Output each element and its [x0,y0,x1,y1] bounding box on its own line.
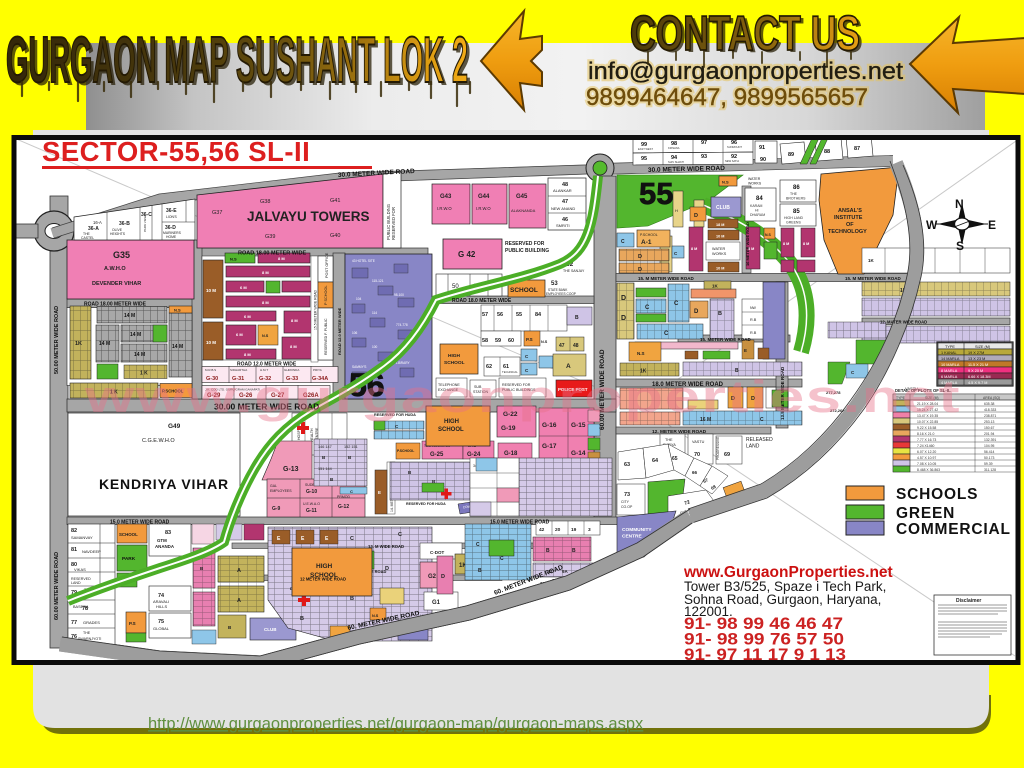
svg-text:97: 97 [701,140,707,146]
svg-text:9 X 20 M: 9 X 20 M [968,369,983,373]
svg-text:10 M: 10 M [206,340,216,345]
svg-text:G-19: G-19 [501,425,516,432]
svg-text:GLOBAL: GLOBAL [153,626,170,631]
svg-text:NAVDEEP: NAVDEEP [82,549,101,554]
svg-text:G-9: G-9 [272,506,281,512]
svg-text:NEW ANAND: NEW ANAND [551,206,575,211]
svg-text:151 144: 151 144 [318,467,332,471]
svg-text:E: E [378,490,381,495]
svg-text:114: 114 [372,311,377,315]
svg-text:CLUB: CLUB [716,205,730,211]
svg-text:www.gurgaonproperties.net: www.gurgaonproperties.net [84,371,961,422]
svg-text:70: 70 [694,452,700,458]
svg-text:PRMOD: PRMOD [337,495,351,499]
svg-text:WORKS: WORKS [712,252,727,256]
svg-text:N.S: N.S [230,257,237,262]
svg-text:19 X 27M: 19 X 27M [968,351,984,355]
svg-text:47: 47 [562,199,568,205]
svg-text:SCHOOL: SCHOOL [438,427,464,433]
svg-text:6.07 X 12.20: 6.07 X 12.20 [917,450,936,454]
svg-text:P.S: P.S [129,621,136,626]
svg-text:E: E [744,348,747,353]
svg-text:P.S: P.S [526,337,533,342]
svg-text:THE: THE [790,192,798,196]
svg-text:82: 82 [71,528,77,534]
svg-text:HIGH: HIGH [316,563,333,570]
svg-text:SMRITI: SMRITI [556,223,570,228]
svg-text:ANSAL'S: ANSAL'S [838,208,862,214]
svg-text:C: C [476,542,480,548]
svg-text:N.S: N.S [541,340,548,344]
svg-text:8.16 X 21.0: 8.16 X 21.0 [917,432,934,436]
svg-text:8 M: 8 M [291,318,298,323]
svg-text:69: 69 [724,452,730,458]
svg-text:GAL: GAL [270,484,277,488]
svg-text:N.S: N.S [174,308,181,313]
svg-text:104.95: 104.95 [984,444,994,448]
svg-text:G-12: G-12 [338,504,349,510]
svg-text:20: 20 [555,527,561,533]
svg-text:SAMANVAY: SAMANVAY [71,535,93,540]
svg-text:DHARAM: DHARAM [750,213,765,217]
svg-text:62: 62 [486,364,492,370]
svg-text:58: 58 [482,338,488,344]
svg-text:8 M: 8 M [262,270,269,275]
svg-text:N.S: N.S [372,614,379,618]
svg-text:EMPLOYEES COOP: EMPLOYEES COOP [546,292,576,296]
svg-text:N.S: N.S [262,334,269,338]
svg-text:RESERVED FOR: RESERVED FOR [505,241,545,247]
svg-text:10 M: 10 M [716,267,724,271]
svg-text:146 147: 146 147 [318,445,332,449]
svg-text:86: 86 [793,185,800,191]
svg-text:59: 59 [495,338,501,344]
svg-text:36-E: 36-E [166,208,177,214]
svg-text:93: 93 [701,154,707,160]
svg-text:N: N [955,197,964,211]
svg-text:JALVAYU TOWERS: JALVAYU TOWERS [247,209,370,224]
svg-text:BASERA: BASERA [73,605,89,609]
svg-text:1K: 1K [712,284,719,289]
svg-text:AREA (SQ): AREA (SQ) [983,396,1000,400]
svg-text:WATER: WATER [748,177,761,181]
svg-text:8 M: 8 M [290,344,297,349]
svg-text:14 MARLA: 14 MARLA [941,357,960,361]
svg-text:13 X 23 M: 13 X 23 M [968,357,985,361]
svg-text:G-24: G-24 [467,452,481,458]
svg-text:CLUB: CLUB [264,627,277,632]
svg-text:GURGAON MAP SUSHANT LOK 2: GURGAON MAP SUSHANT LOK 2 [6,23,468,96]
svg-text:TECHNOLOGY: TECHNOLOGY [828,229,867,235]
svg-text:106: 106 [352,331,358,335]
svg-text:77: 77 [71,620,77,626]
svg-text:P SCHOOL: P SCHOOL [324,285,328,305]
svg-text:HEALTH: HEALTH [310,428,314,442]
svg-text:6 M: 6 M [240,285,247,290]
svg-text:B: B [546,548,550,554]
svg-text:3: 3 [588,527,591,533]
svg-text:G-25: G-25 [430,452,444,458]
svg-text:15. M METER WIDE ROAD: 15. M METER WIDE ROAD [845,276,902,281]
svg-text:LAND: LAND [71,581,81,585]
svg-text:G1: G1 [432,600,441,606]
svg-text:RESERVED FOR: RESERVED FOR [391,207,396,240]
svg-text:48: 48 [573,343,579,349]
svg-text:4.5 X 9.7 M: 4.5 X 9.7 M [968,381,987,385]
svg-text:THE: THE [83,631,91,635]
svg-text:84: 84 [756,196,763,202]
svg-text:ROAD 18.00 METER WIDE: ROAD 18.00 METER WIDE [84,302,147,308]
svg-text:91: 91 [759,145,765,151]
svg-text:63: 63 [624,462,630,468]
svg-text:CO.OP: CO.OP [621,505,633,509]
svg-text:13. M WIDE ROAD: 13. M WIDE ROAD [368,544,404,549]
svg-text:PUBLIC BUILDING: PUBLIC BUILDING [386,204,391,240]
svg-text:ANANDA: ANANDA [155,544,175,549]
svg-text:ROAD 18.00 METER WIDE: ROAD 18.00 METER WIDE [238,251,306,257]
svg-text:9899464647, 9899565657: 9899464647, 9899565657 [586,84,868,111]
svg-text:115-121: 115-121 [372,279,384,283]
svg-text:6.66 X 18.3M: 6.66 X 18.3M [968,375,991,379]
svg-text:WATER: WATER [712,247,726,251]
svg-text:152 151: 152 151 [344,445,358,449]
svg-text:P.SCHOOL: P.SCHOOL [397,449,414,453]
svg-text:C: C [500,556,504,562]
svg-text:ALAKNANDA: ALAKNANDA [511,208,536,213]
svg-text:15. METER WIDE ROAD: 15. METER WIDE ROAD [700,337,752,342]
svg-text:HI: HI [755,209,759,213]
svg-text:B: B [350,596,354,602]
svg-text:OF: OF [846,222,854,228]
svg-text:G49: G49 [168,423,181,430]
svg-text:10 MARLA: 10 MARLA [941,363,960,367]
svg-text:60.00 METER WIDE ROAD: 60.00 METER WIDE ROAD [54,552,60,620]
svg-text:65: 65 [672,456,678,462]
svg-text:SHIV SHAKTI: SHIV SHAKTI [668,160,684,164]
svg-text:E: E [988,218,996,232]
svg-text:HILLS: HILLS [156,604,167,609]
svg-text:C: C [398,532,402,538]
svg-text:ROAD 12.0 METER WIDE: ROAD 12.0 METER WIDE [337,307,342,355]
svg-text:NEW SATIA: NEW SATIA [725,159,739,163]
svg-text:42: 42 [539,527,545,533]
svg-text:GREEN: GREEN [896,505,955,522]
svg-text:104: 104 [356,297,362,301]
svg-text:SUNMOUNT: SUNMOUNT [727,145,742,149]
svg-text:G2: G2 [428,574,437,580]
svg-text:81: 81 [71,547,77,553]
svg-text:11.5 X 21 M: 11.5 X 21 M [968,363,988,367]
svg-text:LAND: LAND [746,444,760,450]
svg-text:G-13: G-13 [283,466,299,473]
svg-text:SECTOR-55,56 SL-II: SECTOR-55,56 SL-II [42,136,310,167]
svg-text:253.13: 253.13 [984,420,994,424]
svg-text:43 HOTEL SITE: 43 HOTEL SITE [352,259,375,263]
svg-text:KARAM: KARAM [750,204,763,208]
svg-text:8 M: 8 M [278,256,285,261]
svg-text:91- 97 11 17 9 1 13: 91- 97 11 17 9 1 13 [684,645,846,664]
svg-text:GREENS: GREENS [786,221,801,225]
svg-text:53: 53 [551,281,558,287]
svg-text:55: 55 [516,312,522,318]
svg-text:R.B: R.B [750,318,757,322]
svg-text:VASTU: VASTU [692,440,705,444]
svg-text:PROGRESSIVE: PROGRESSIVE [716,437,720,460]
svg-text:36-B: 36-B [119,221,130,227]
svg-text:PARK VIEW: PARK VIEW [143,215,147,232]
svg-text:D: D [694,309,699,315]
svg-text:B: B [572,548,576,554]
svg-text:G45: G45 [516,194,528,200]
svg-text:NW: NW [750,306,757,310]
svg-text:8.468 X 36.863: 8.468 X 36.863 [917,468,940,472]
svg-text:U.E.W.A.O: U.E.W.A.O [303,502,320,506]
svg-text:N.S: N.S [722,180,729,185]
svg-text:ALANKAR: ALANKAR [553,188,572,193]
svg-text:60: 60 [508,338,514,344]
svg-text:INSTITUTE: INSTITUTE [834,215,863,221]
svg-text:CONTACT US: CONTACT US [630,7,860,61]
svg-text:100: 100 [372,345,378,349]
svg-text:15. M METER WIDE ROAD: 15. M METER WIDE ROAD [638,276,695,281]
svg-text:9.22 X 15.58: 9.22 X 15.58 [917,426,936,430]
svg-text:ROAD 18.0 METER WIDE: ROAD 18.0 METER WIDE [452,298,512,304]
svg-text:G 42: G 42 [458,250,476,259]
svg-text:10 M: 10 M [206,288,216,293]
svg-text:PUBLIC BUILDING: PUBLIC BUILDING [505,248,549,254]
svg-text:55: 55 [639,176,673,211]
svg-text:132.391: 132.391 [984,438,996,442]
svg-text:G43: G43 [440,194,452,200]
svg-text:D: D [441,574,445,580]
svg-text:635.38: 635.38 [984,402,994,406]
svg-text:C.G.E.W.H.O: C.G.E.W.H.O [142,438,175,444]
svg-text:SCHOOL: SCHOOL [444,360,465,366]
svg-text:N.S: N.S [637,351,645,356]
svg-text:59.39: 59.39 [984,462,993,466]
svg-text:G41: G41 [330,198,340,204]
svg-text:CASTEL: CASTEL [81,236,94,240]
svg-text:THE SANJAY: THE SANJAY [563,269,585,273]
svg-text:COMMERCIAL: COMMERCIAL [896,521,1011,538]
svg-text:15.0 METER WIDE ROAD: 15.0 METER WIDE ROAD [490,520,550,526]
svg-text:RELEASED: RELEASED [746,437,773,443]
svg-text:W: W [926,218,938,232]
svg-text:15.0 METER WIDE ROAD: 15.0 METER WIDE ROAD [110,520,170,526]
svg-text:POST OFFICE: POST OFFICE [325,252,329,278]
svg-text:64: 64 [652,458,659,464]
svg-text:C-DOT: C-DOT [430,550,444,555]
svg-text:SCHOOLS: SCHOOLS [896,486,978,503]
svg-text:50.00 METER WIDE ROAD: 50.00 METER WIDE ROAD [54,306,60,374]
svg-text:150.67: 150.67 [984,426,994,430]
svg-text:I.R.W.O: I.R.W.O [476,206,491,211]
svg-text:C: C [621,239,625,245]
svg-text:HIGH LAND: HIGH LAND [784,216,804,220]
svg-text:18 M: 18 M [716,223,724,227]
svg-text:G-10: G-10 [306,489,317,495]
svg-text:HIGH: HIGH [448,353,461,359]
svg-text:G-16: G-16 [542,422,557,429]
svg-text:VIKAS: VIKAS [74,567,86,572]
svg-text:EAST WEST: EAST WEST [638,147,653,151]
svg-text:HEIGHTS: HEIGHTS [110,232,126,236]
svg-text:EMPLOYEES: EMPLOYEES [270,489,292,493]
svg-text:311.128: 311.128 [984,468,996,472]
svg-text:50.173: 50.173 [984,456,994,460]
svg-text:SIZE (M): SIZE (M) [975,345,991,349]
svg-text:SCHOOL: SCHOOL [510,287,538,294]
svg-text:DEVENDER VIHAR: DEVENDER VIHAR [92,281,141,287]
svg-text:66: 66 [692,470,698,475]
svg-text:G38: G38 [260,199,270,205]
svg-text:418.333: 418.333 [984,408,996,412]
svg-text:16 METER WIDE ROAD: 16 METER WIDE ROAD [745,222,750,266]
svg-text:P.SCHOOL: P.SCHOOL [640,233,658,237]
svg-text:98-100: 98-100 [394,293,404,297]
svg-text:C: C [350,536,354,542]
svg-text:57: 57 [482,312,488,318]
svg-text:15.5 METER WIDE ROAD: 15.5 METER WIDE ROAD [314,290,318,330]
svg-text:G40: G40 [330,233,340,239]
svg-text:12. METER WIDE ROAD: 12. METER WIDE ROAD [652,429,707,435]
svg-text:1K: 1K [868,258,875,263]
svg-text:12. MATER WIDE ROAD: 12. MATER WIDE ROAD [880,320,927,325]
svg-text:7.24 X1460: 7.24 X1460 [917,444,934,448]
svg-text:A: A [566,363,571,370]
svg-text:56.414: 56.414 [984,450,994,454]
svg-text:LIBRARY: LIBRARY [396,361,410,365]
svg-text:G39: G39 [265,234,275,240]
svg-text:H: H [675,208,678,213]
svg-text:RESERVED F. PUBLIC: RESERVED F. PUBLIC [324,318,328,355]
svg-text:TYPE: TYPE [945,345,955,349]
svg-text:73: 73 [624,492,630,498]
svg-text:56: 56 [497,312,503,318]
svg-text:75: 75 [158,619,164,625]
svg-text:10 M: 10 M [716,235,724,239]
svg-text:84: 84 [535,312,542,318]
svg-text:R.B: R.B [750,331,757,335]
svg-text:G35: G35 [113,250,130,260]
svg-text:CENTRE: CENTRE [622,534,643,540]
svg-text:S: S [956,239,964,253]
svg-text:G44: G44 [478,194,490,200]
svg-text:238.871: 238.871 [984,414,996,418]
svg-text:8 M: 8 M [803,242,809,246]
svg-text:C: C [350,489,353,494]
svg-text:G-18: G-18 [504,451,518,457]
svg-text:95: 95 [641,156,647,162]
svg-text:GTM: GTM [157,538,167,543]
svg-text:201.94: 201.94 [984,432,994,436]
svg-text:16-A: 16-A [93,220,102,225]
svg-text:N.S: N.S [765,233,772,237]
svg-text:4.57 X 10.97: 4.57 X 10.97 [917,456,936,460]
svg-text:88: 88 [824,149,830,155]
svg-text:KENDRIYA VIHAR: KENDRIYA VIHAR [99,476,229,492]
svg-text:CITY: CITY [621,500,630,504]
svg-text:12 METER WIDE ROAD: 12 METER WIDE ROAD [300,577,346,582]
svg-text:G-14: G-14 [571,450,586,457]
svg-text:G37: G37 [212,210,222,216]
svg-text:HOME: HOME [166,235,177,239]
svg-text:8 M: 8 M [783,242,789,246]
svg-text:83: 83 [165,530,171,536]
svg-text:THE: THE [665,438,673,442]
svg-text:85: 85 [793,209,800,215]
svg-text:SCHOOL: SCHOOL [119,532,138,537]
svg-text:Disclaimer: Disclaimer [956,598,981,604]
svg-text:D: D [694,213,698,219]
svg-text:87: 87 [854,146,860,152]
svg-text:G-17: G-17 [542,443,557,450]
svg-text:90: 90 [760,157,766,163]
svg-text:RESERVED FOR HUDA: RESERVED FOR HUDA [406,502,446,506]
svg-text:8 M: 8 M [691,247,697,251]
svg-text:1 KANAL: 1 KANAL [941,351,957,355]
svg-text:B: B [478,568,482,574]
svg-text:BROTHERS: BROTHERS [786,197,806,201]
svg-text:PARK: PARK [122,556,136,562]
svg-text:B: B [575,315,579,321]
svg-text:47: 47 [559,343,565,349]
svg-text:GRADES: GRADES [83,620,100,625]
svg-text:8 M: 8 M [244,352,251,357]
svg-text:A-1: A-1 [641,239,652,246]
svg-text:8 M: 8 M [262,300,269,305]
svg-text:G-15: G-15 [571,422,586,429]
svg-text:KRISHNA: KRISHNA [668,146,680,150]
svg-text:http://www.gurgaonproperties.n: http://www.gurgaonproperties.net/gurgaon… [148,715,644,733]
svg-text:info@gurgaonproperties.net: info@gurgaonproperties.net [588,58,903,85]
svg-text:7.77 X 16.73: 7.77 X 16.73 [917,438,936,442]
svg-text:B: B [300,616,304,622]
svg-text:6 M: 6 M [236,332,243,337]
svg-text:774-778: 774-778 [396,323,408,327]
svg-text:89: 89 [788,152,794,158]
svg-text:WORKS: WORKS [748,182,762,186]
svg-text:7.08 X 10.05: 7.08 X 10.05 [917,462,936,466]
svg-text:6 M: 6 M [244,314,251,319]
svg-text:A.W.H.O: A.W.H.O [104,266,126,272]
svg-text:I.R.W.O: I.R.W.O [437,206,452,211]
svg-text:19: 19 [571,527,577,533]
svg-text:COMMUNITY: COMMUNITY [622,527,652,533]
svg-text:G-11: G-11 [306,508,317,514]
svg-text:LION'S: LION'S [166,215,178,219]
